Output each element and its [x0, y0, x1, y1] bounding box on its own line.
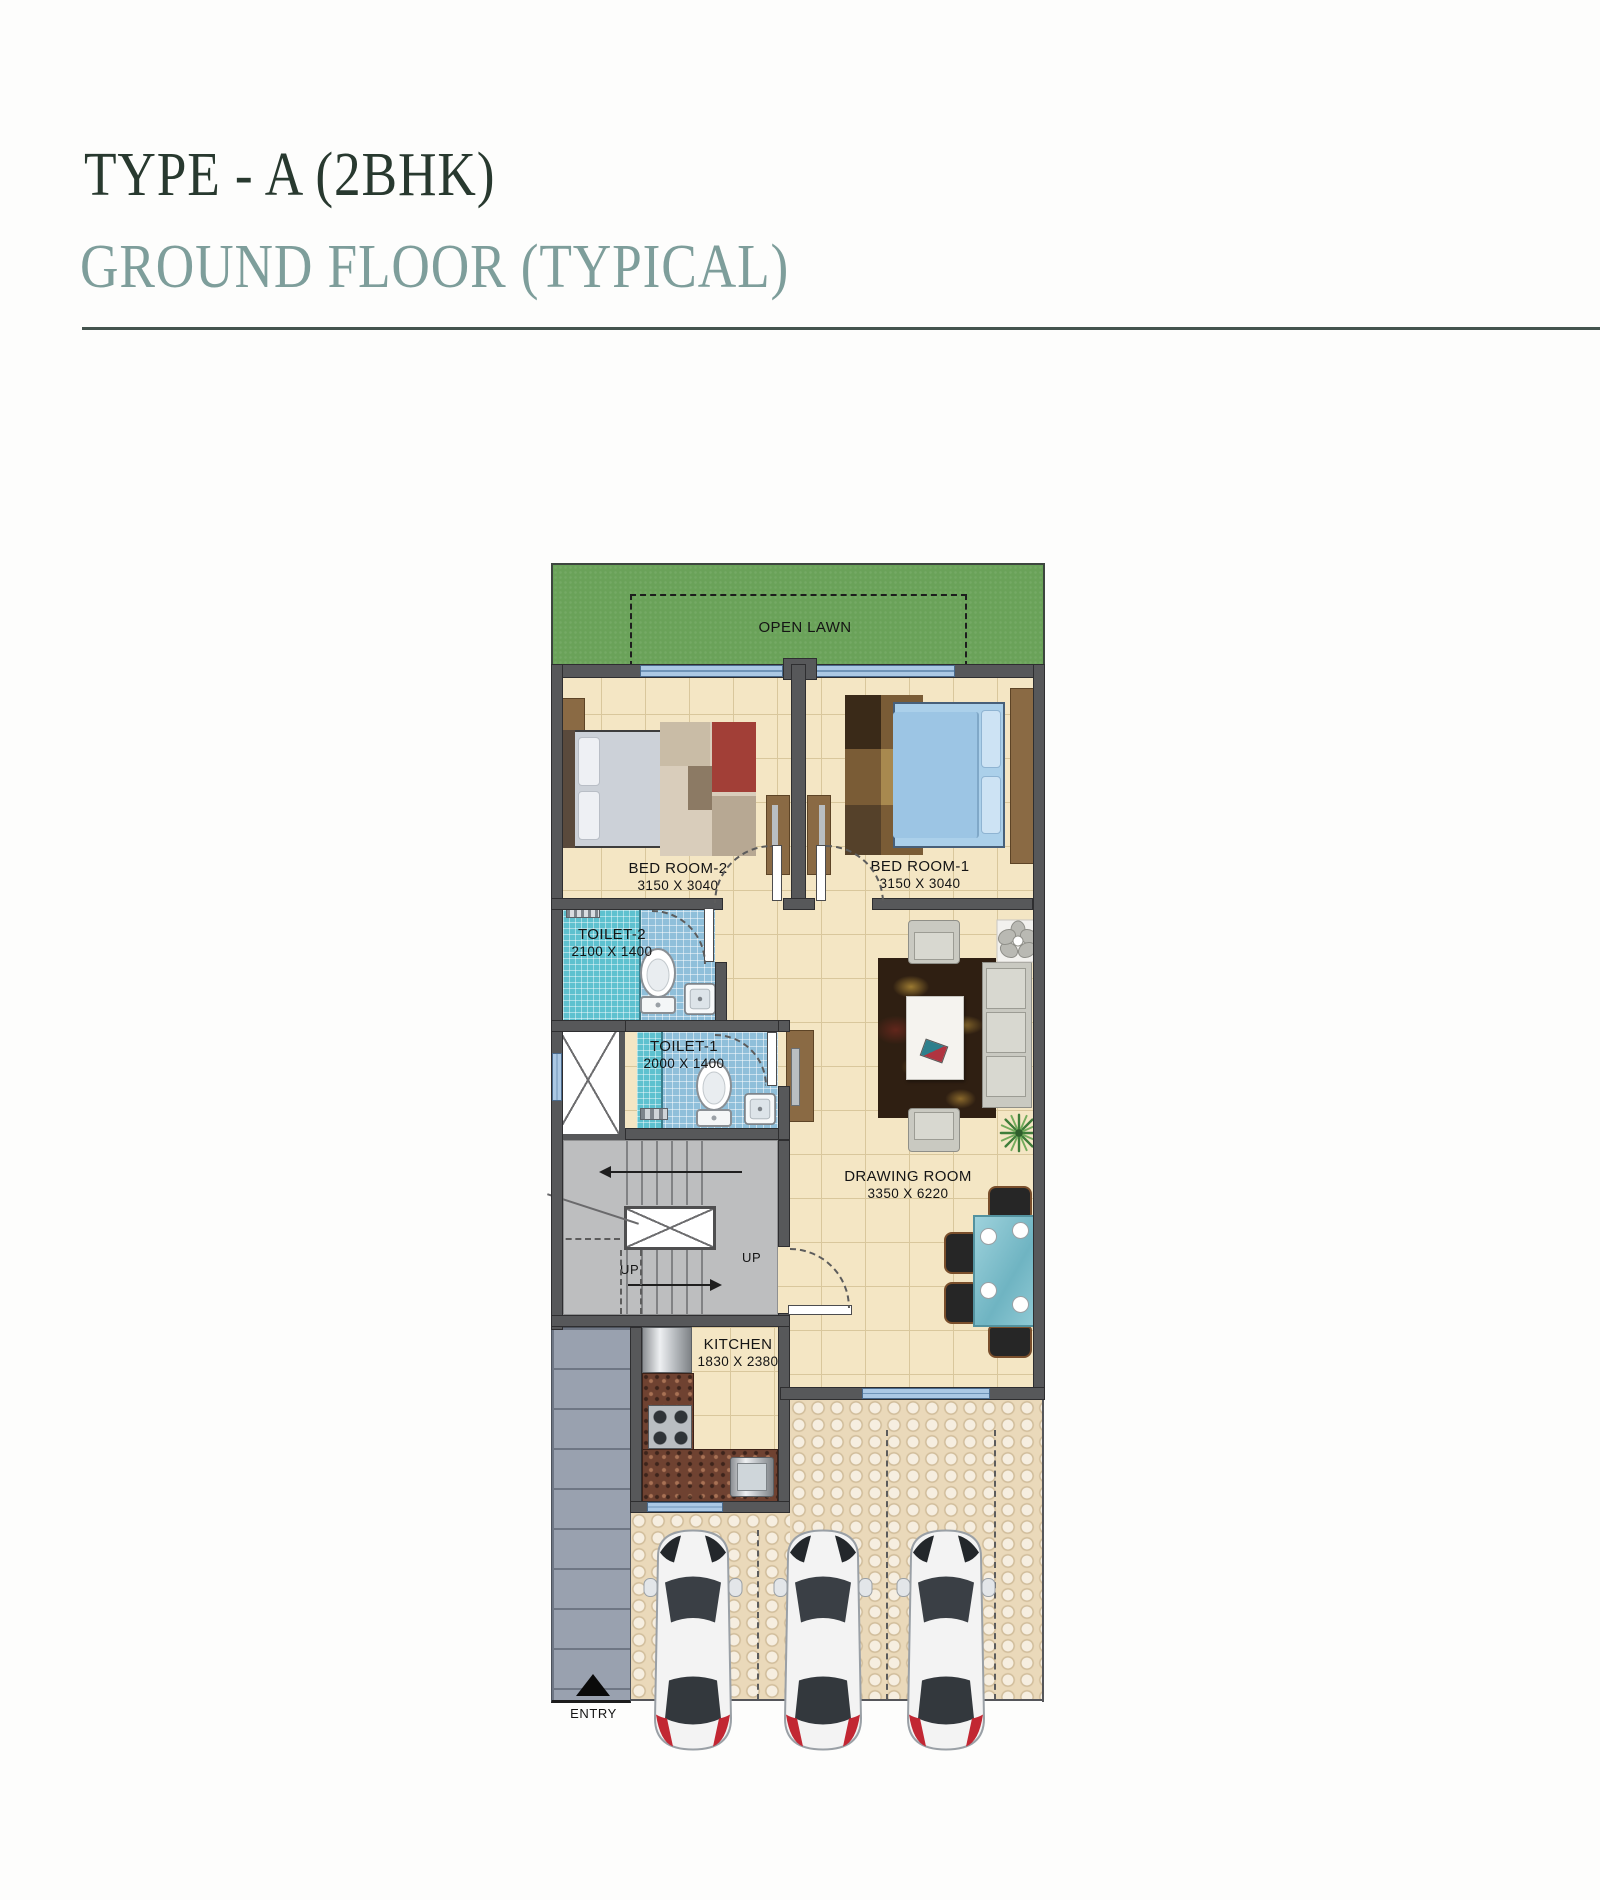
coffee-table	[906, 996, 964, 1080]
brochure-page: TYPE - A (2BHK) GROUND FLOOR (TYPICAL) O…	[0, 0, 1600, 1900]
rug-patch	[712, 722, 756, 792]
wall-kitchen-west	[630, 1327, 642, 1513]
divider-line	[82, 327, 1600, 330]
armchair-seat	[914, 932, 954, 960]
kitchen-sink-basin	[737, 1463, 767, 1491]
toilet2-shower-area	[557, 904, 641, 1020]
door-leaf-bedroom1	[816, 845, 826, 901]
up-arrow-left-icon	[599, 1166, 611, 1178]
stair-dash	[620, 1250, 622, 1314]
wall-bedroom-south	[872, 898, 1033, 910]
pillow	[578, 791, 600, 840]
door-leaf-toilet2	[704, 908, 714, 962]
open-lawn-label: OPEN LAWN	[705, 619, 905, 637]
dining-chair	[944, 1232, 976, 1274]
window-kitchen	[647, 1502, 723, 1512]
wall-kitchen-east	[778, 1313, 790, 1513]
stair-landing-void	[624, 1206, 716, 1250]
pillow	[981, 776, 1001, 834]
tv-screen	[791, 1048, 800, 1106]
wall-bedroom-divider	[791, 664, 806, 910]
wall-east	[1033, 664, 1045, 1400]
gas-stove-icon	[648, 1405, 692, 1449]
wall-bedroom-south	[783, 898, 815, 910]
plate	[1012, 1296, 1029, 1313]
sofa-cushion	[986, 968, 1026, 1009]
stair-dash	[640, 1250, 642, 1314]
wall-toilet1-east	[778, 1086, 790, 1140]
dining-chair	[988, 1186, 1032, 1218]
sofa-cushion	[986, 1012, 1026, 1053]
sink-icon	[684, 982, 716, 1016]
wall-bedroom-south	[551, 898, 723, 910]
wall-stairs-south	[551, 1315, 790, 1327]
window-north-left	[640, 665, 783, 677]
door-leaf-toilet1	[767, 1032, 777, 1086]
headboard-panel	[1010, 688, 1034, 864]
plate	[980, 1282, 997, 1299]
page-subtitle: GROUND FLOOR (TYPICAL)	[80, 232, 789, 303]
room-label-toilet2: TOILET-2 2100 X 1400	[558, 926, 666, 960]
stair-steps-upper	[626, 1141, 714, 1205]
sofa-cushion	[986, 1056, 1026, 1097]
wall-hall-east	[778, 1140, 790, 1247]
dining-chair	[944, 1282, 976, 1324]
car-top-view	[643, 1522, 743, 1758]
entry-arrow-icon	[576, 1674, 610, 1696]
wall-west	[551, 664, 563, 1330]
plate	[980, 1228, 997, 1245]
wall-toilet2-east	[715, 962, 727, 1022]
dining-chair	[988, 1326, 1032, 1358]
sink-icon	[744, 1092, 776, 1126]
pillow	[578, 737, 600, 786]
plate	[1012, 1222, 1029, 1239]
stair-dash	[556, 1238, 620, 1240]
car-top-view	[773, 1522, 873, 1758]
stair-up-label: UP	[620, 1262, 639, 1277]
room-label-drawing: DRAWING ROOM 3350 X 6220	[828, 1168, 988, 1202]
door-leaf-bedroom2	[772, 845, 782, 901]
page-title: TYPE - A (2BHK)	[84, 140, 495, 211]
wall-toilet1-north	[625, 1020, 790, 1032]
stair-up-label: UP	[742, 1250, 761, 1265]
rug-patch	[660, 722, 710, 766]
parking-divider-line	[886, 1430, 888, 1700]
rug-patch	[688, 766, 712, 810]
window-drawing	[862, 1388, 990, 1399]
rug-patch	[712, 796, 756, 856]
rug-patch	[845, 695, 881, 749]
rug-patch	[845, 805, 881, 855]
toiletry-shelf-icon	[640, 1108, 668, 1120]
entry-walkway	[551, 1327, 631, 1703]
car-top-view	[896, 1522, 996, 1758]
armchair-seat	[914, 1112, 954, 1140]
wall-toilet1-east	[778, 1020, 790, 1032]
up-arrow-right-icon	[710, 1279, 722, 1291]
pillow	[981, 710, 1001, 768]
window-north-right	[812, 665, 955, 677]
plot-right-boundary	[1042, 1400, 1044, 1702]
stair-direction-line	[610, 1171, 742, 1173]
window-west	[552, 1053, 562, 1101]
entry-label: ENTRY	[551, 1706, 636, 1722]
wall-toilet1-south	[625, 1128, 790, 1140]
parking-divider-line	[757, 1530, 759, 1700]
bed-blanket	[893, 712, 979, 838]
